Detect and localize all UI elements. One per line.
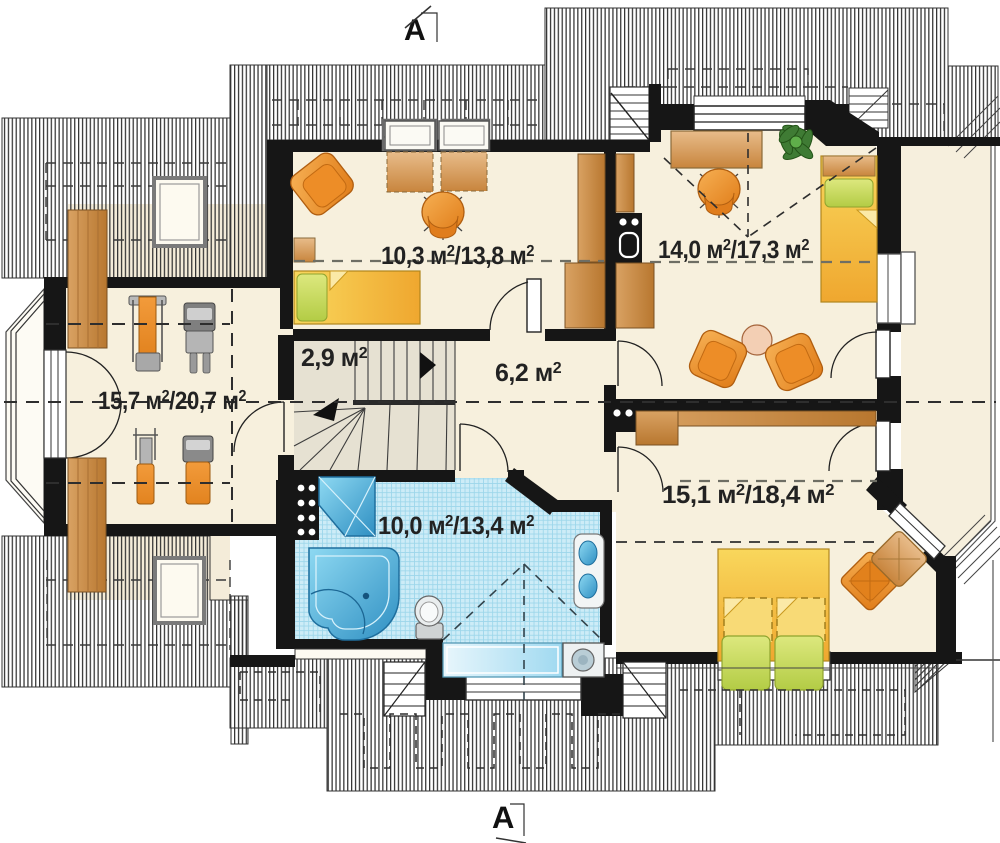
svg-text:A: A	[492, 800, 514, 835]
svg-text:10,0 м2/13,4 м2: 10,0 м2/13,4 м2	[378, 512, 535, 540]
svg-text:15,1 м2/18,4 м2: 15,1 м2/18,4 м2	[662, 481, 835, 509]
svg-text:14,0 м2/17,3 м2: 14,0 м2/17,3 м2	[658, 236, 810, 264]
svg-text:6,2 м2: 6,2 м2	[495, 359, 562, 387]
svg-text:10,3 м2/13,8 м2: 10,3 м2/13,8 м2	[381, 242, 535, 270]
svg-text:15,7 м2/20,7 м2: 15,7 м2/20,7 м2	[98, 387, 247, 415]
svg-text:2,9 м2: 2,9 м2	[301, 344, 368, 372]
